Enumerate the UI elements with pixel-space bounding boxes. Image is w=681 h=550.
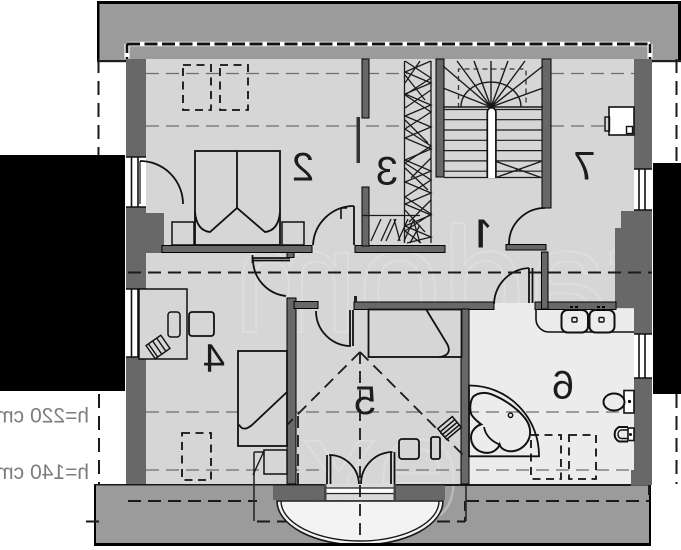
svg-text:6: 6 [552,364,574,408]
svg-text:3: 3 [376,150,398,194]
svg-text:h=140 cm: h=140 cm [0,461,89,484]
svg-text:4: 4 [203,337,225,381]
svg-text:2: 2 [292,146,314,190]
svg-text:5: 5 [354,379,376,423]
svg-text:7: 7 [573,145,595,189]
svg-text:h=220 cm: h=220 cm [0,405,89,428]
